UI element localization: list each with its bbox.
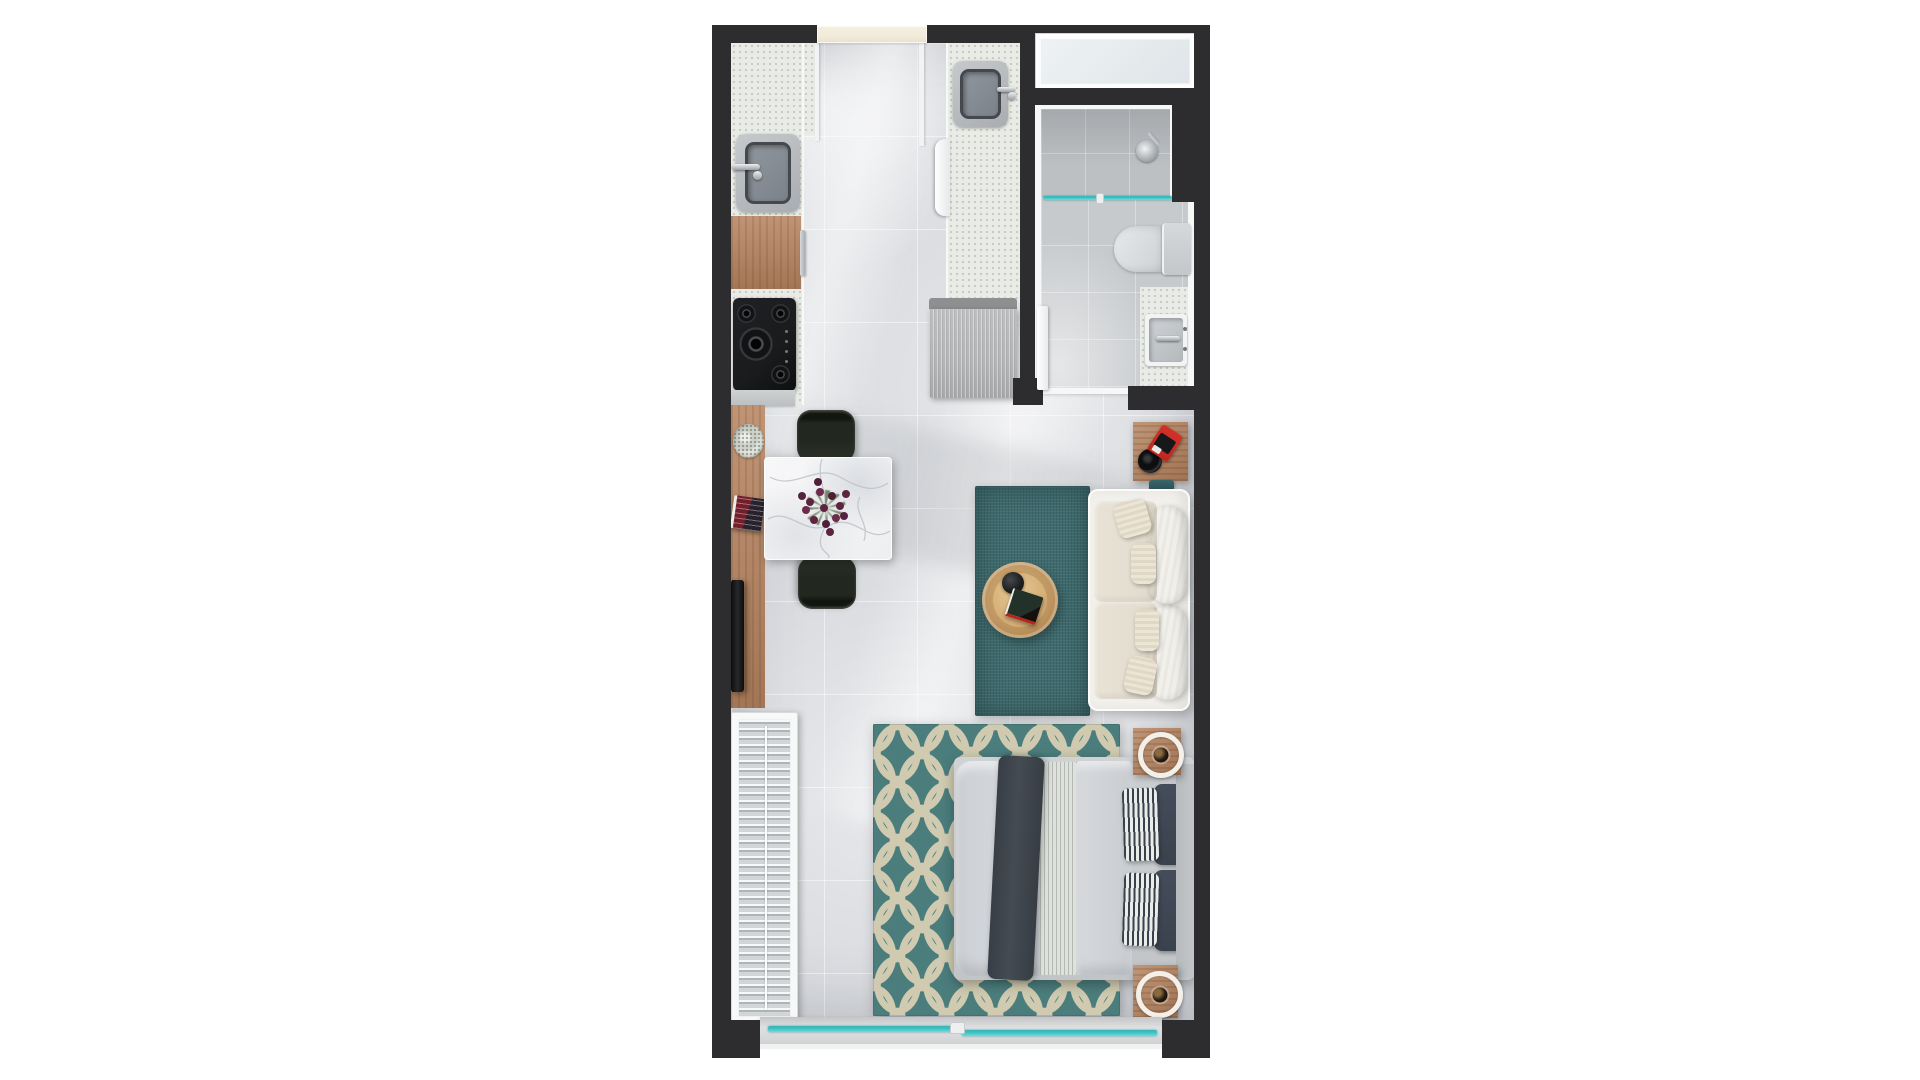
balcony-glass-right xyxy=(962,1030,1157,1036)
window-glass xyxy=(1041,39,1190,84)
wall-top-bathroom xyxy=(1035,25,1194,33)
toilet-bowl xyxy=(1114,226,1168,272)
kitchen-sink-basin xyxy=(745,142,791,204)
hall-cabinet xyxy=(929,309,1017,398)
wall-bathroom-bottom xyxy=(1128,386,1194,410)
island-sink-basin xyxy=(960,69,1001,119)
nightstand xyxy=(1133,728,1181,775)
burner xyxy=(771,304,790,323)
tv xyxy=(729,580,744,692)
kitchen-sink xyxy=(736,134,800,212)
entry-door xyxy=(817,26,927,43)
wreath-decor xyxy=(733,424,764,458)
book-stack xyxy=(730,495,765,532)
balcony-door-handle xyxy=(950,1022,965,1034)
candle xyxy=(1152,987,1167,1002)
striped-pillow xyxy=(1122,872,1160,946)
coffee-table-books xyxy=(1004,588,1043,625)
kitchen-faucet-head xyxy=(753,171,762,180)
kitchen-base-cabinet xyxy=(731,216,801,289)
island-sink xyxy=(953,61,1008,127)
wall-shower-notch xyxy=(1172,103,1194,202)
balcony-glass-left xyxy=(768,1026,957,1032)
wardrobe-rail xyxy=(765,726,767,1010)
shower-head xyxy=(1136,140,1158,162)
entry-jamb xyxy=(919,43,924,146)
accent-pillow xyxy=(1135,609,1159,651)
wall-top-hall xyxy=(927,25,1035,43)
island-faucet-head xyxy=(1008,92,1016,100)
wall-right xyxy=(1194,25,1210,1058)
candle xyxy=(1154,748,1169,763)
cooktop-knob xyxy=(785,360,788,363)
wardrobe xyxy=(731,712,798,1024)
striped-pillow xyxy=(1122,787,1160,861)
washer-door xyxy=(935,139,950,216)
candle-plate xyxy=(1136,971,1183,1018)
vanity-knob xyxy=(1183,327,1187,331)
wall-bottom-left xyxy=(712,1020,760,1058)
hall-cabinet-edge xyxy=(929,298,1017,309)
wall-top-kitchen xyxy=(731,25,817,43)
burner xyxy=(737,304,756,323)
floor-plan-canvas xyxy=(0,0,1920,1080)
cooktop-knob xyxy=(785,330,788,333)
entry-jamb xyxy=(815,43,819,141)
sofa xyxy=(1088,489,1190,711)
cooktop-knob xyxy=(785,350,788,353)
balcony-sill-outer xyxy=(760,1044,1162,1049)
bed-striped-sheet xyxy=(1040,762,1078,975)
wall-bottom-right xyxy=(1162,1020,1210,1058)
hanging-clothes xyxy=(738,719,791,1017)
coffee-table xyxy=(982,562,1058,638)
accent-pillow xyxy=(1131,543,1156,584)
dining-chair xyxy=(798,557,856,609)
candle-plate xyxy=(1138,732,1184,778)
vanity-knob xyxy=(1183,347,1187,351)
wall-under-window xyxy=(1035,88,1194,105)
bathroom-door xyxy=(1037,306,1048,390)
cooktop-knob xyxy=(785,340,788,343)
bathroom-window xyxy=(1035,33,1196,90)
burner xyxy=(739,327,773,361)
counter-end-cap xyxy=(731,390,795,406)
dining-chair xyxy=(797,410,855,462)
toilet-tank xyxy=(1162,223,1191,275)
kitchen-faucet xyxy=(732,164,760,170)
cabinet-handle xyxy=(800,230,805,276)
nightstand xyxy=(1133,965,1178,1018)
side-table xyxy=(1133,422,1188,481)
shower-glass-handle xyxy=(1096,193,1104,204)
vanity-faucet xyxy=(1156,336,1180,341)
shower-glass xyxy=(1043,196,1172,200)
wall-left xyxy=(712,25,731,1058)
cooktop xyxy=(733,298,796,391)
wall-bathroom-left xyxy=(1020,43,1035,405)
burner xyxy=(771,365,790,384)
centerpiece-flowers xyxy=(820,504,828,512)
